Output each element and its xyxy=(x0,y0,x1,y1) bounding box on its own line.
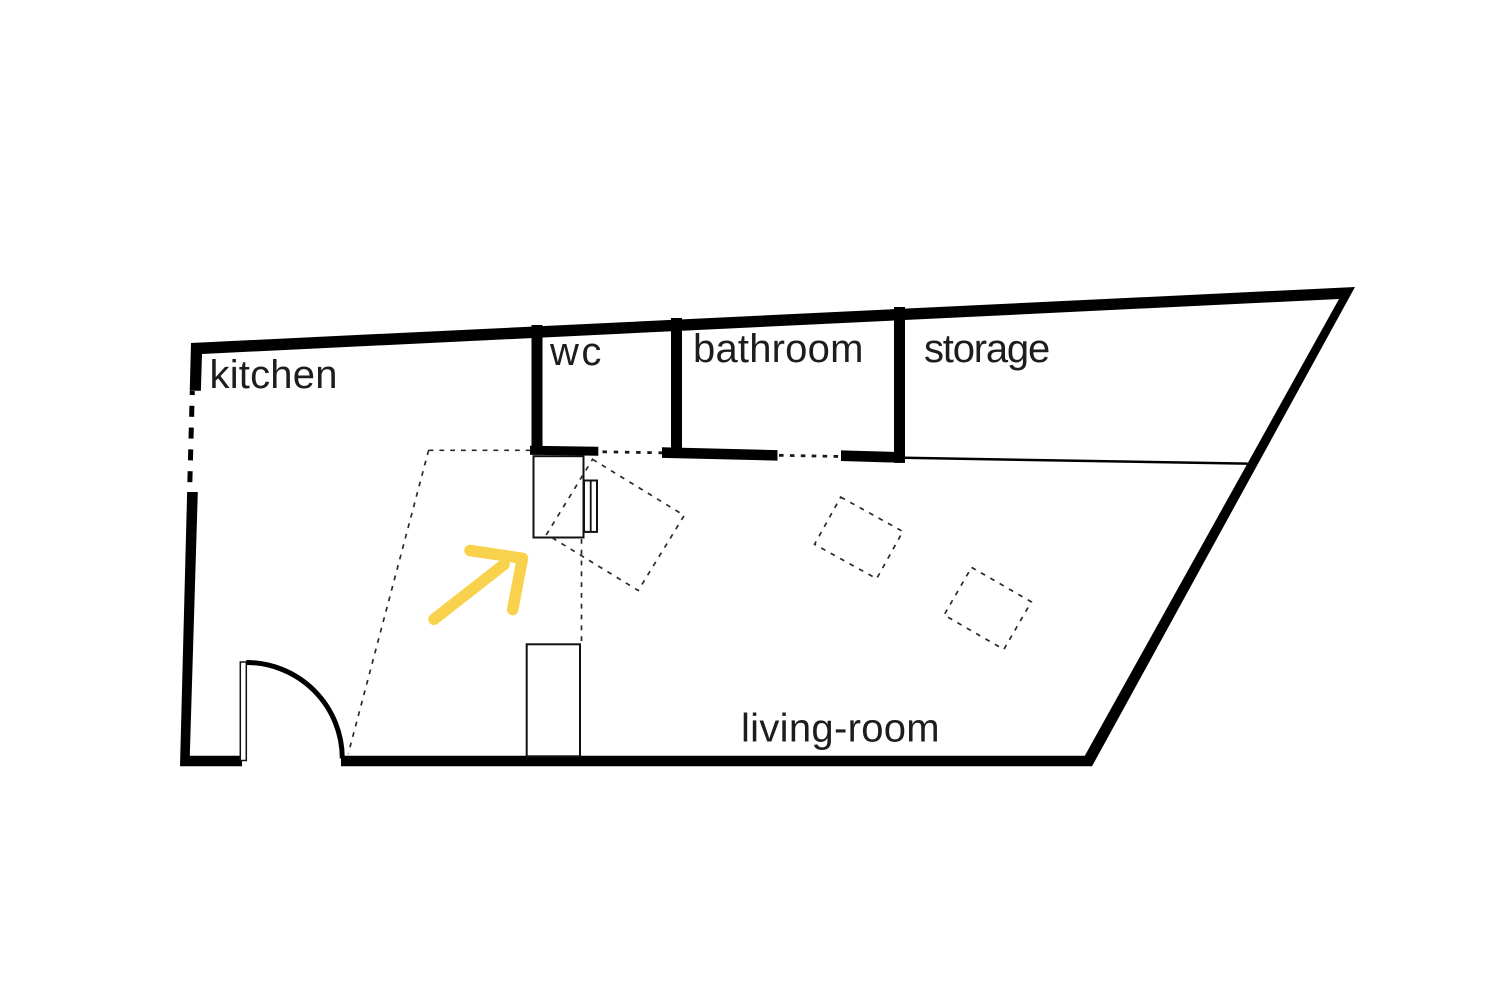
svg-text:living-room: living-room xyxy=(741,707,940,751)
svg-text:wc: wc xyxy=(549,330,604,374)
svg-text:bathroom: bathroom xyxy=(693,327,864,371)
svg-text:storage: storage xyxy=(924,327,1049,371)
svg-text:kitchen: kitchen xyxy=(210,353,338,397)
